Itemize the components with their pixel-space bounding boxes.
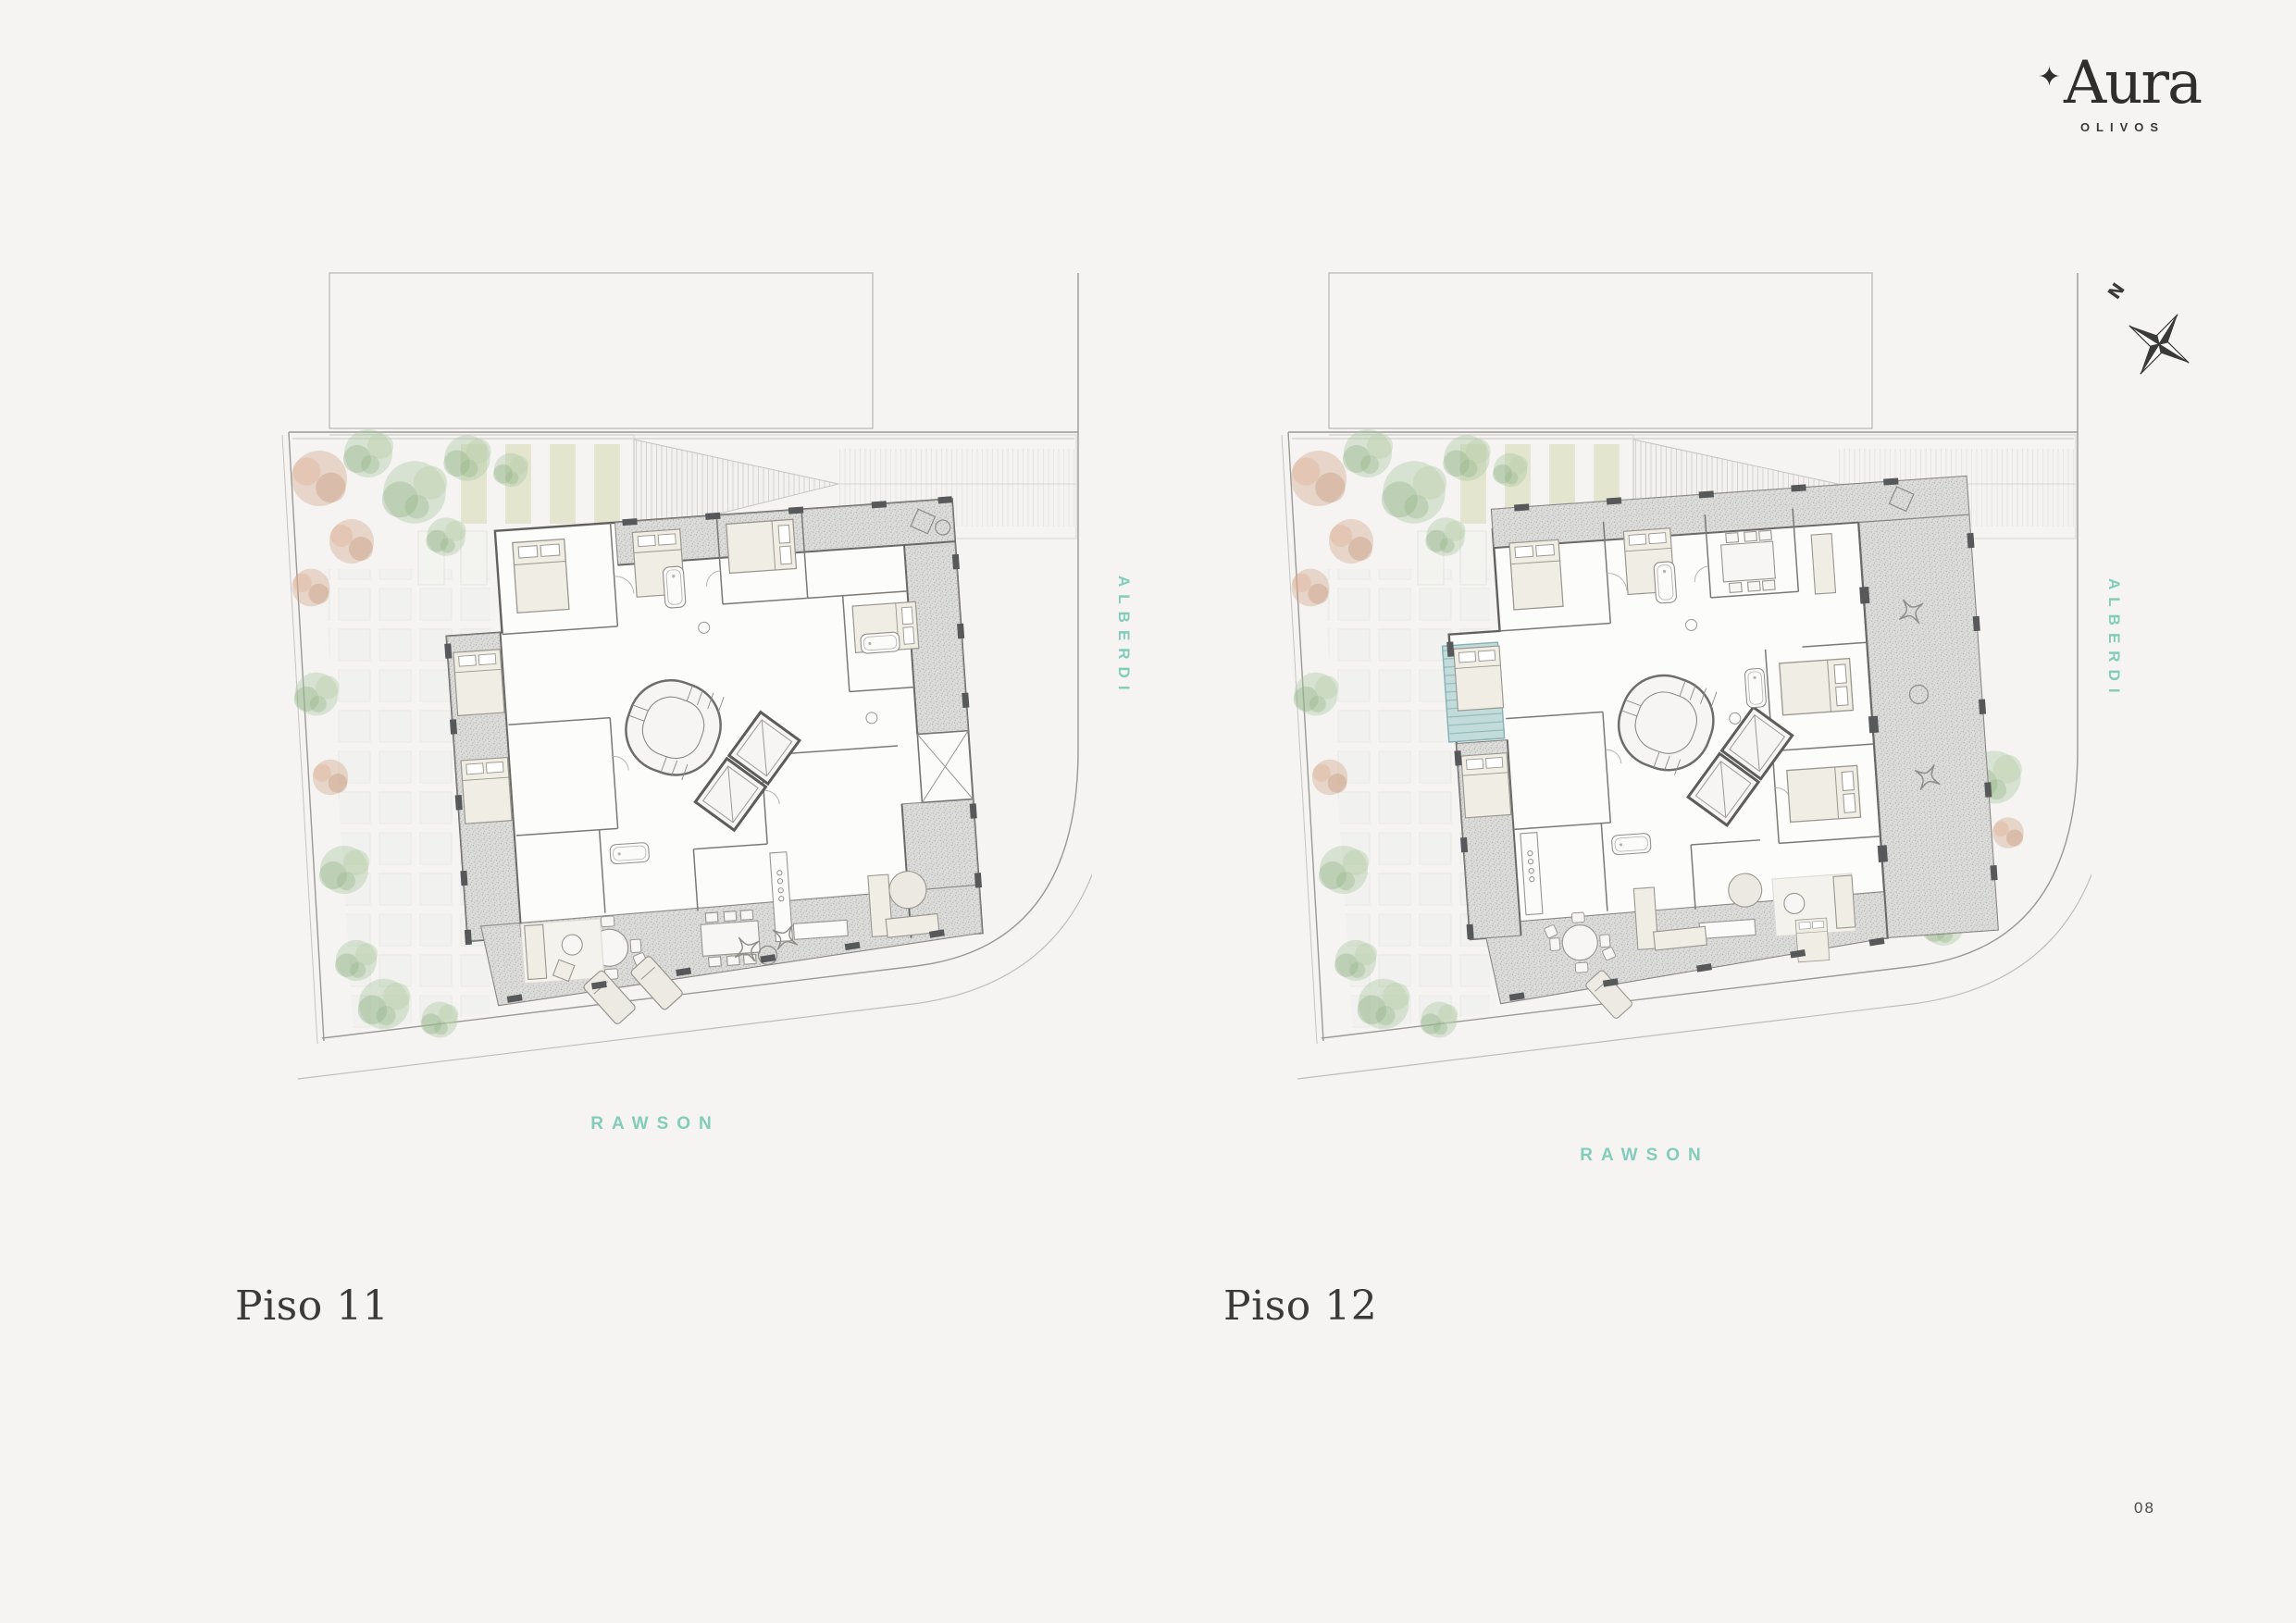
compass-north-label: N (2104, 279, 2129, 304)
floor-plan-piso-11 (213, 259, 1092, 1092)
compass-rose: N (2087, 268, 2216, 398)
plan-title-piso-11: Piso 11 (235, 1282, 389, 1330)
brand-name: ✦Aura (1990, 54, 2249, 113)
brand-star-icon: ✦ (2038, 61, 2061, 93)
brand-logo: ✦Aura OLIVOS (1990, 54, 2249, 134)
brand-wordmark: Aura (2064, 49, 2201, 118)
shaft-x-box (917, 731, 973, 803)
building-footprint-piso-12 (1433, 473, 2005, 1030)
brand-subtitle: OLIVOS (1990, 120, 2249, 134)
street-label-alberdi-right: ALBERDI (2104, 578, 2123, 726)
street-label-rawson-right: RAWSON (1538, 1146, 1751, 1166)
compass-star-icon (2111, 296, 2208, 393)
floor-plan-piso-12 (1212, 259, 2091, 1092)
plan-title-piso-12: Piso 12 (1223, 1282, 1377, 1330)
building-footprint-piso-11 (437, 496, 990, 1035)
street-label-rawson-left: RAWSON (553, 1114, 757, 1134)
page-number: 08 (2134, 1499, 2155, 1518)
street-label-alberdi-left: ALBERDI (1114, 576, 1133, 724)
